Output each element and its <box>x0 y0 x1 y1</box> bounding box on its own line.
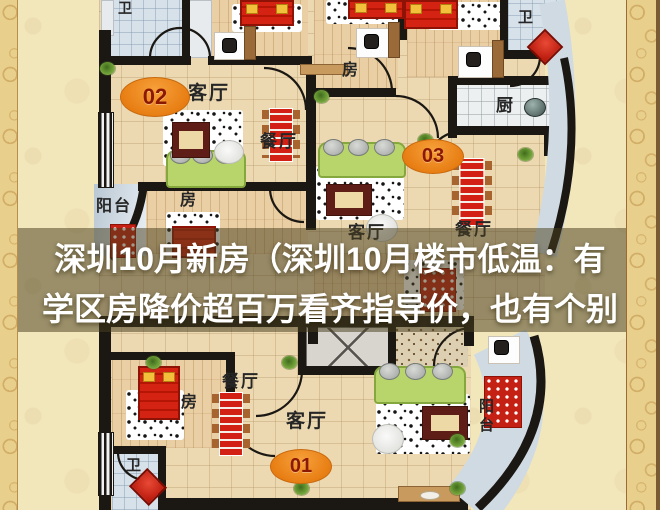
wall <box>111 352 233 360</box>
window <box>98 432 114 496</box>
room-label-dining: 餐厅 <box>260 133 298 150</box>
sofa-living-01 <box>374 366 466 404</box>
room-label-balcony: 阳台 <box>96 199 132 215</box>
unit-badge-01: 01 <box>270 449 332 484</box>
plant <box>146 356 161 369</box>
room-label-room: 房 <box>342 63 360 79</box>
plant <box>450 482 465 495</box>
room-label-room: 房 <box>181 395 199 411</box>
office-chair <box>364 34 379 49</box>
room-label-bath: 卫 <box>518 10 535 25</box>
shower-glass-panel <box>188 0 212 58</box>
plant <box>100 62 115 75</box>
unit-badge-03: 03 <box>402 139 464 174</box>
office-chair <box>466 52 481 67</box>
wall <box>544 126 553 156</box>
gold-border-right <box>626 0 658 510</box>
room-label-living: 客厅 <box>188 84 230 103</box>
coffee-table <box>172 122 210 158</box>
plant <box>518 148 533 161</box>
room-label-balcony-vertical: 阳台 <box>478 398 493 436</box>
balcony-window <box>98 112 114 188</box>
room-label-bath: 卫 <box>118 1 134 15</box>
elevator-shaft <box>306 327 390 368</box>
side-table <box>214 140 244 164</box>
room-label-room: 房 <box>180 193 198 209</box>
plant <box>282 356 297 369</box>
room-label-kitchen: 厨 <box>496 97 515 114</box>
desk-return <box>492 40 504 78</box>
wall <box>182 0 190 58</box>
news-thumbnail-floorplan: 卫 客厅 餐厅 房 阳台 房 卫 厨 客厅 餐厅 餐厅 房 客厅 卫 阳台 02… <box>0 0 660 510</box>
desk-return <box>244 26 256 60</box>
bed <box>404 0 458 29</box>
headline-line-1: 深圳10月新房（深圳10月楼市低温：有 <box>0 237 660 282</box>
plant <box>314 90 329 103</box>
desk-return <box>388 22 400 58</box>
floor-stair-landing <box>394 327 468 367</box>
bed <box>348 0 404 19</box>
bed <box>138 366 180 420</box>
dining-set-01 <box>212 392 250 454</box>
office-chair <box>494 340 509 355</box>
image-right-edge <box>656 0 660 510</box>
plant <box>450 434 465 447</box>
tv-console <box>300 64 348 75</box>
gold-border-left <box>0 0 18 510</box>
room-label-dining: 餐厅 <box>222 373 260 390</box>
sofa-living-03 <box>318 142 406 178</box>
office-chair <box>222 38 237 53</box>
bed <box>240 0 294 26</box>
room-label-living: 客厅 <box>286 412 328 431</box>
wall <box>111 446 165 454</box>
coffee-table <box>326 184 372 216</box>
room-label-bath: 卫 <box>126 458 143 473</box>
side-table <box>372 424 404 454</box>
kitchen-sink <box>524 98 546 117</box>
headline-line-2: 学区房降价超百万看齐指导价，也有个别 <box>0 287 660 332</box>
dining-set-03 <box>452 158 492 224</box>
unit-badge-02: 02 <box>120 77 190 117</box>
